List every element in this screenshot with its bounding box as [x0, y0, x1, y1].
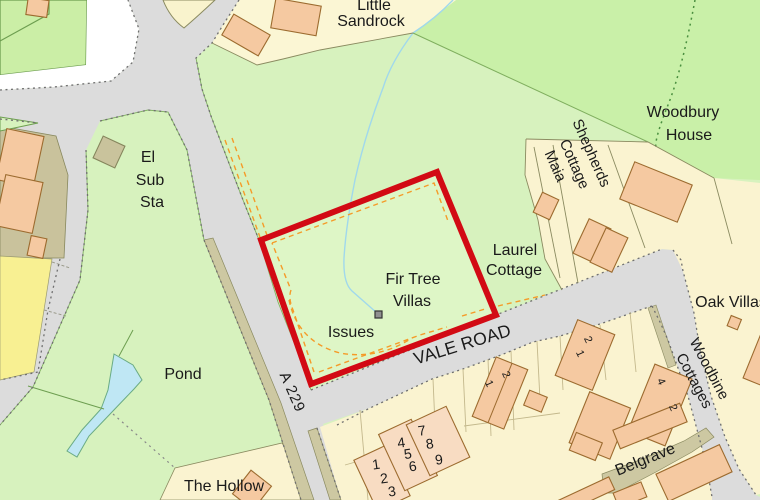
svg-text:Sub: Sub [136, 172, 165, 189]
svg-text:Cottage: Cottage [486, 262, 542, 279]
svg-text:Villas: Villas [393, 293, 431, 310]
svg-text:House: House [666, 127, 712, 144]
svg-text:Oak Villas: Oak Villas [695, 294, 760, 311]
svg-text:Laurel: Laurel [493, 242, 537, 259]
svg-text:Sta: Sta [140, 194, 164, 211]
svg-text:Issues: Issues [328, 324, 374, 341]
svg-text:Little: Little [357, 0, 391, 14]
svg-text:El: El [141, 149, 155, 166]
svg-text:The Hollow: The Hollow [184, 478, 264, 495]
svg-text:Fir Tree: Fir Tree [385, 271, 440, 288]
svg-text:Sandrock: Sandrock [337, 13, 406, 30]
svg-text:Pond: Pond [164, 366, 201, 383]
svg-text:Woodbury: Woodbury [647, 104, 720, 121]
